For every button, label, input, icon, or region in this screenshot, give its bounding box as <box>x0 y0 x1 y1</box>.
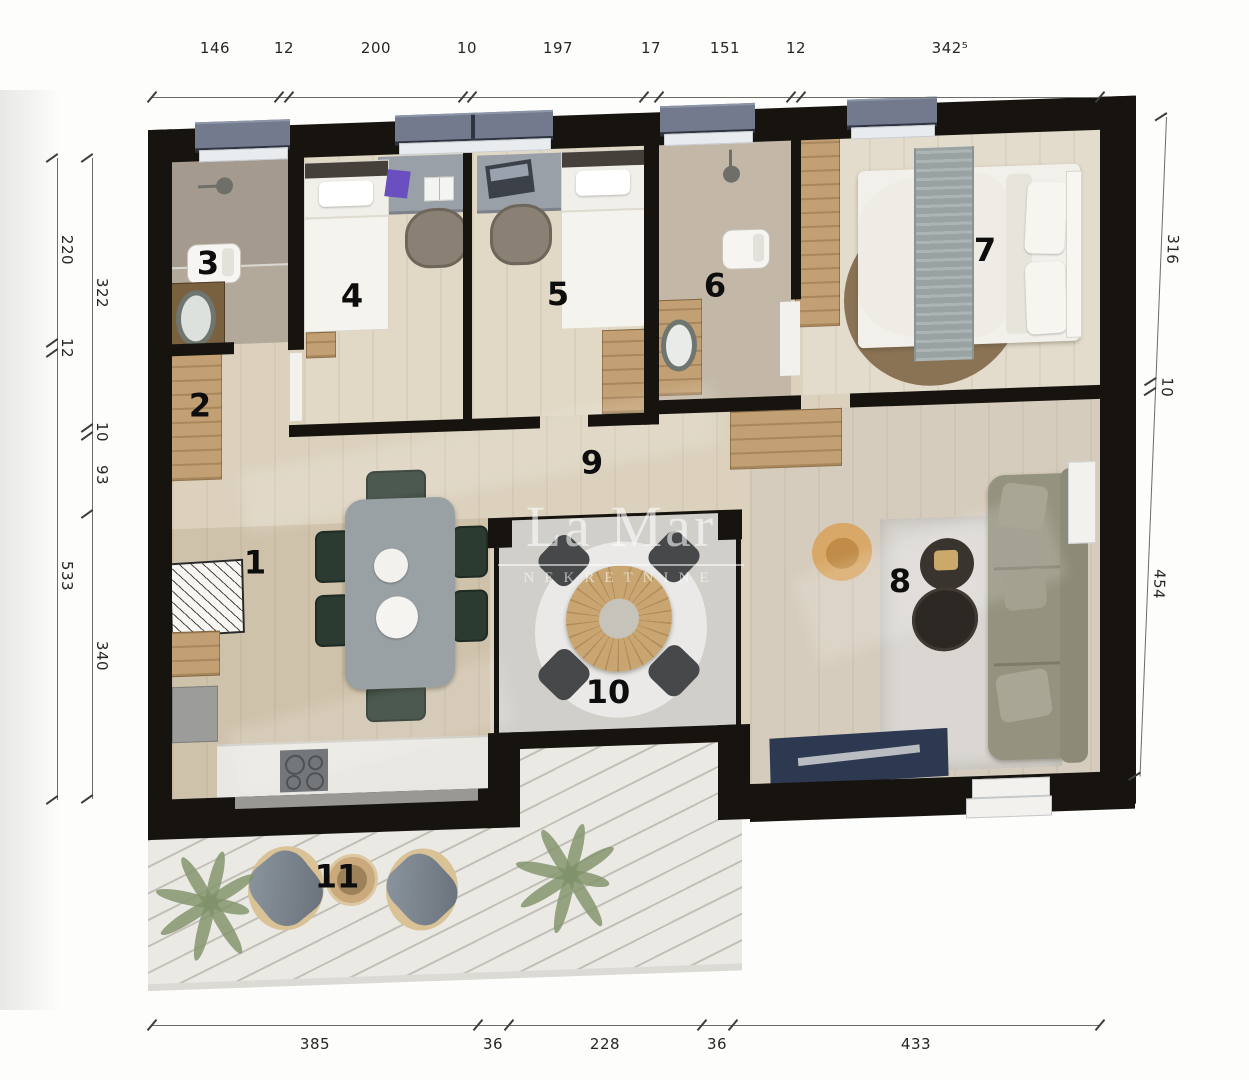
dimension-label: 10 <box>93 422 111 442</box>
watermark-subtitle: NEKRETNINE <box>498 570 744 587</box>
dimension-label: 454 <box>1150 569 1169 600</box>
watermark: La Mar NEKRETNINE <box>498 498 744 587</box>
dimension-label: 200 <box>361 39 391 57</box>
dimension-label: 228 <box>590 1035 620 1053</box>
dimension-label: 10 <box>457 39 477 57</box>
dimension-label: 12 <box>274 39 294 57</box>
dimension-label: 533 <box>58 561 76 591</box>
dimension-rule <box>152 1025 1100 1026</box>
dimension-label: 93 <box>93 465 111 485</box>
dimension-label: 146 <box>200 39 230 57</box>
dimension-label: 433 <box>901 1035 931 1053</box>
dimension-tick <box>46 795 59 805</box>
dimension-label: 17 <box>641 39 661 57</box>
dimension-label: 12 <box>58 338 76 358</box>
dimension-rule <box>1140 117 1167 777</box>
watermark-rule <box>498 564 744 566</box>
watermark-brand: La Mar <box>498 498 744 556</box>
floorplan-page: 1234567891011 La Mar NEKRETNINE 14612200… <box>0 0 1249 1080</box>
dimension-label: 12 <box>786 39 806 57</box>
dimension-label: 220 <box>58 235 76 265</box>
dimension-label: 316 <box>1163 234 1182 265</box>
dimension-label: 342⁵ <box>932 39 969 57</box>
dimension-label: 197 <box>543 39 573 57</box>
dimension-label: 36 <box>483 1035 503 1053</box>
dimension-label: 36 <box>707 1035 727 1053</box>
dimension-rule <box>152 97 1100 98</box>
dimension-label: 385 <box>300 1035 330 1053</box>
dimension-label: 10 <box>1158 377 1177 398</box>
dimension-label: 151 <box>710 39 740 57</box>
dimension-tick <box>81 794 94 804</box>
dimension-label: 322 <box>93 278 111 308</box>
dimension-label: 340 <box>93 641 111 671</box>
